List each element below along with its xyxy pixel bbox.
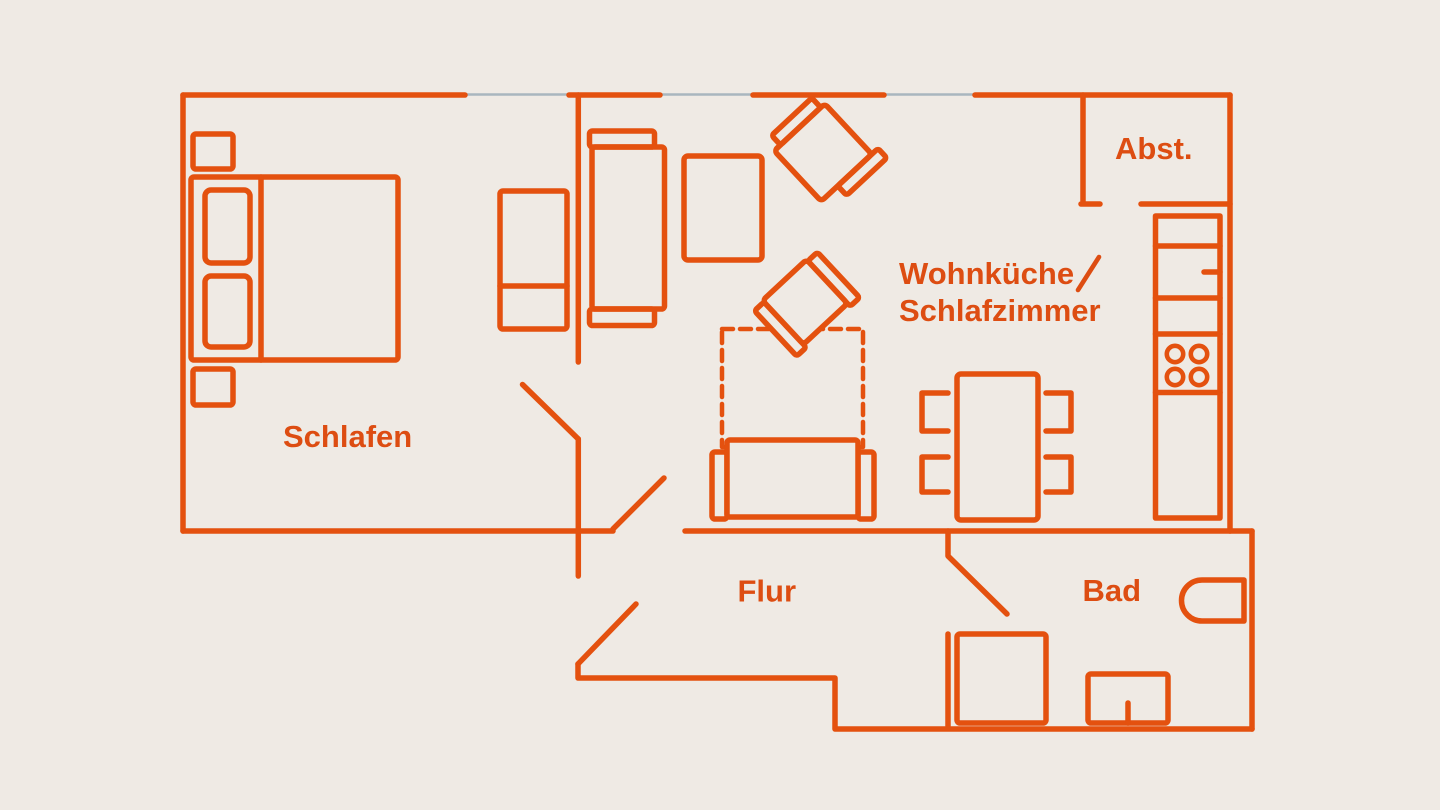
svg-text:Flur: Flur bbox=[738, 574, 797, 609]
svg-text:Schlafen: Schlafen bbox=[283, 419, 412, 454]
svg-text:Bad: Bad bbox=[1083, 573, 1142, 608]
svg-text:Wohnküche: Wohnküche bbox=[899, 256, 1074, 291]
svg-text:Schlafzimmer: Schlafzimmer bbox=[899, 293, 1101, 328]
svg-text:Abst.: Abst. bbox=[1115, 131, 1193, 166]
